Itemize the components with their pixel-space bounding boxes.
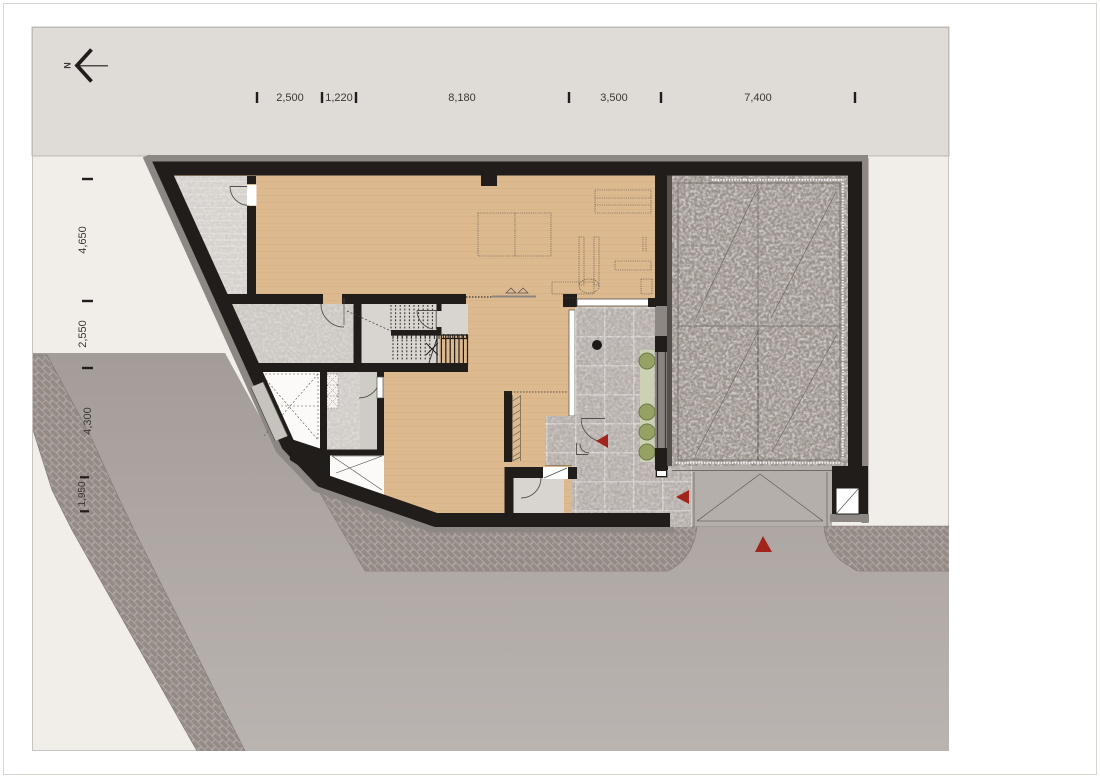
svg-text:2,500: 2,500 [276, 92, 304, 104]
svg-text:4,650: 4,650 [77, 226, 89, 254]
svg-text:7,400: 7,400 [744, 92, 772, 104]
svg-text:N: N [62, 62, 72, 69]
svg-text:8,180: 8,180 [448, 92, 476, 104]
svg-text:1,220: 1,220 [325, 92, 353, 104]
svg-text:2,550: 2,550 [77, 320, 89, 348]
svg-text:3,500: 3,500 [600, 92, 628, 104]
svg-text:1,950: 1,950 [77, 481, 88, 506]
svg-text:4,300: 4,300 [82, 407, 94, 435]
